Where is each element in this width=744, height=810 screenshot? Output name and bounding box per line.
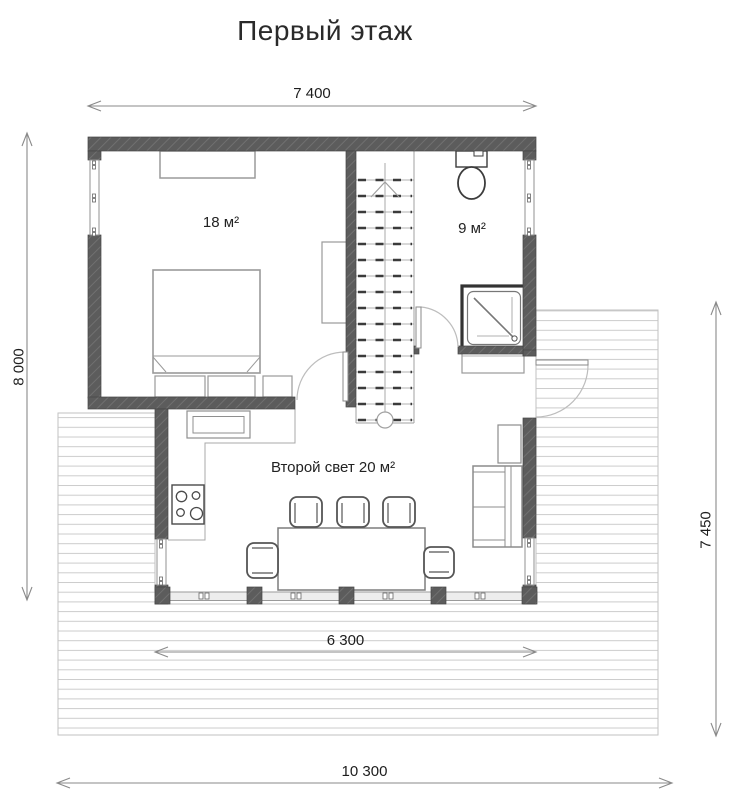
wall-east-upper bbox=[523, 235, 536, 356]
closet bbox=[322, 242, 347, 323]
chair bbox=[247, 543, 278, 578]
floor-plan: Первый этаж 7 400 8 000 7 450 6 300 10 3… bbox=[0, 0, 744, 810]
dining-table bbox=[278, 528, 425, 590]
wall-bathroom-south bbox=[458, 346, 523, 354]
facade-post-icon bbox=[247, 587, 262, 604]
stair-start-circle bbox=[377, 412, 393, 428]
dimension-total-label: 10 300 bbox=[57, 763, 672, 780]
bedroom-area-label: 18 м² bbox=[151, 214, 291, 231]
wall-east-lower bbox=[523, 418, 536, 538]
dimension-left-label: 8 000 bbox=[11, 348, 28, 386]
shower bbox=[462, 286, 526, 350]
console-table bbox=[498, 425, 521, 463]
wardrobe bbox=[160, 151, 255, 178]
chair bbox=[290, 497, 322, 527]
facade-post-icon bbox=[431, 587, 446, 604]
bedside-units bbox=[155, 376, 292, 397]
facade-post-icon bbox=[339, 587, 354, 604]
bed bbox=[153, 270, 260, 373]
chair bbox=[424, 547, 454, 578]
page-title: Первый этаж bbox=[103, 15, 547, 47]
chair bbox=[383, 497, 415, 527]
kitchen-stove bbox=[172, 485, 204, 524]
wall-bedroom-south bbox=[88, 397, 295, 409]
wall-west-upper bbox=[88, 235, 101, 398]
glazed-facade bbox=[155, 587, 537, 604]
door-bathroom bbox=[416, 307, 458, 348]
bathroom-cabinet bbox=[462, 352, 524, 373]
living-area-label: Второй свет 20 м² bbox=[213, 459, 453, 476]
kitchen-sink bbox=[187, 411, 250, 438]
dimension-top bbox=[88, 101, 536, 111]
floor-plan-svg bbox=[0, 0, 744, 810]
door-bedroom bbox=[297, 352, 348, 401]
sofa bbox=[473, 466, 522, 547]
dimension-terrace-label: 6 300 bbox=[155, 632, 536, 649]
toilet bbox=[456, 150, 487, 199]
facade-post-icon bbox=[522, 587, 537, 604]
staircase bbox=[356, 151, 414, 428]
chair bbox=[337, 497, 369, 527]
bathroom-area-label: 9 м² bbox=[412, 220, 532, 237]
dimension-top-label: 7 400 bbox=[88, 85, 536, 102]
facade-post-icon bbox=[155, 587, 170, 604]
wall-west-lower bbox=[155, 409, 168, 539]
dimension-right-label: 7 450 bbox=[698, 511, 715, 549]
wall-north bbox=[88, 137, 536, 151]
